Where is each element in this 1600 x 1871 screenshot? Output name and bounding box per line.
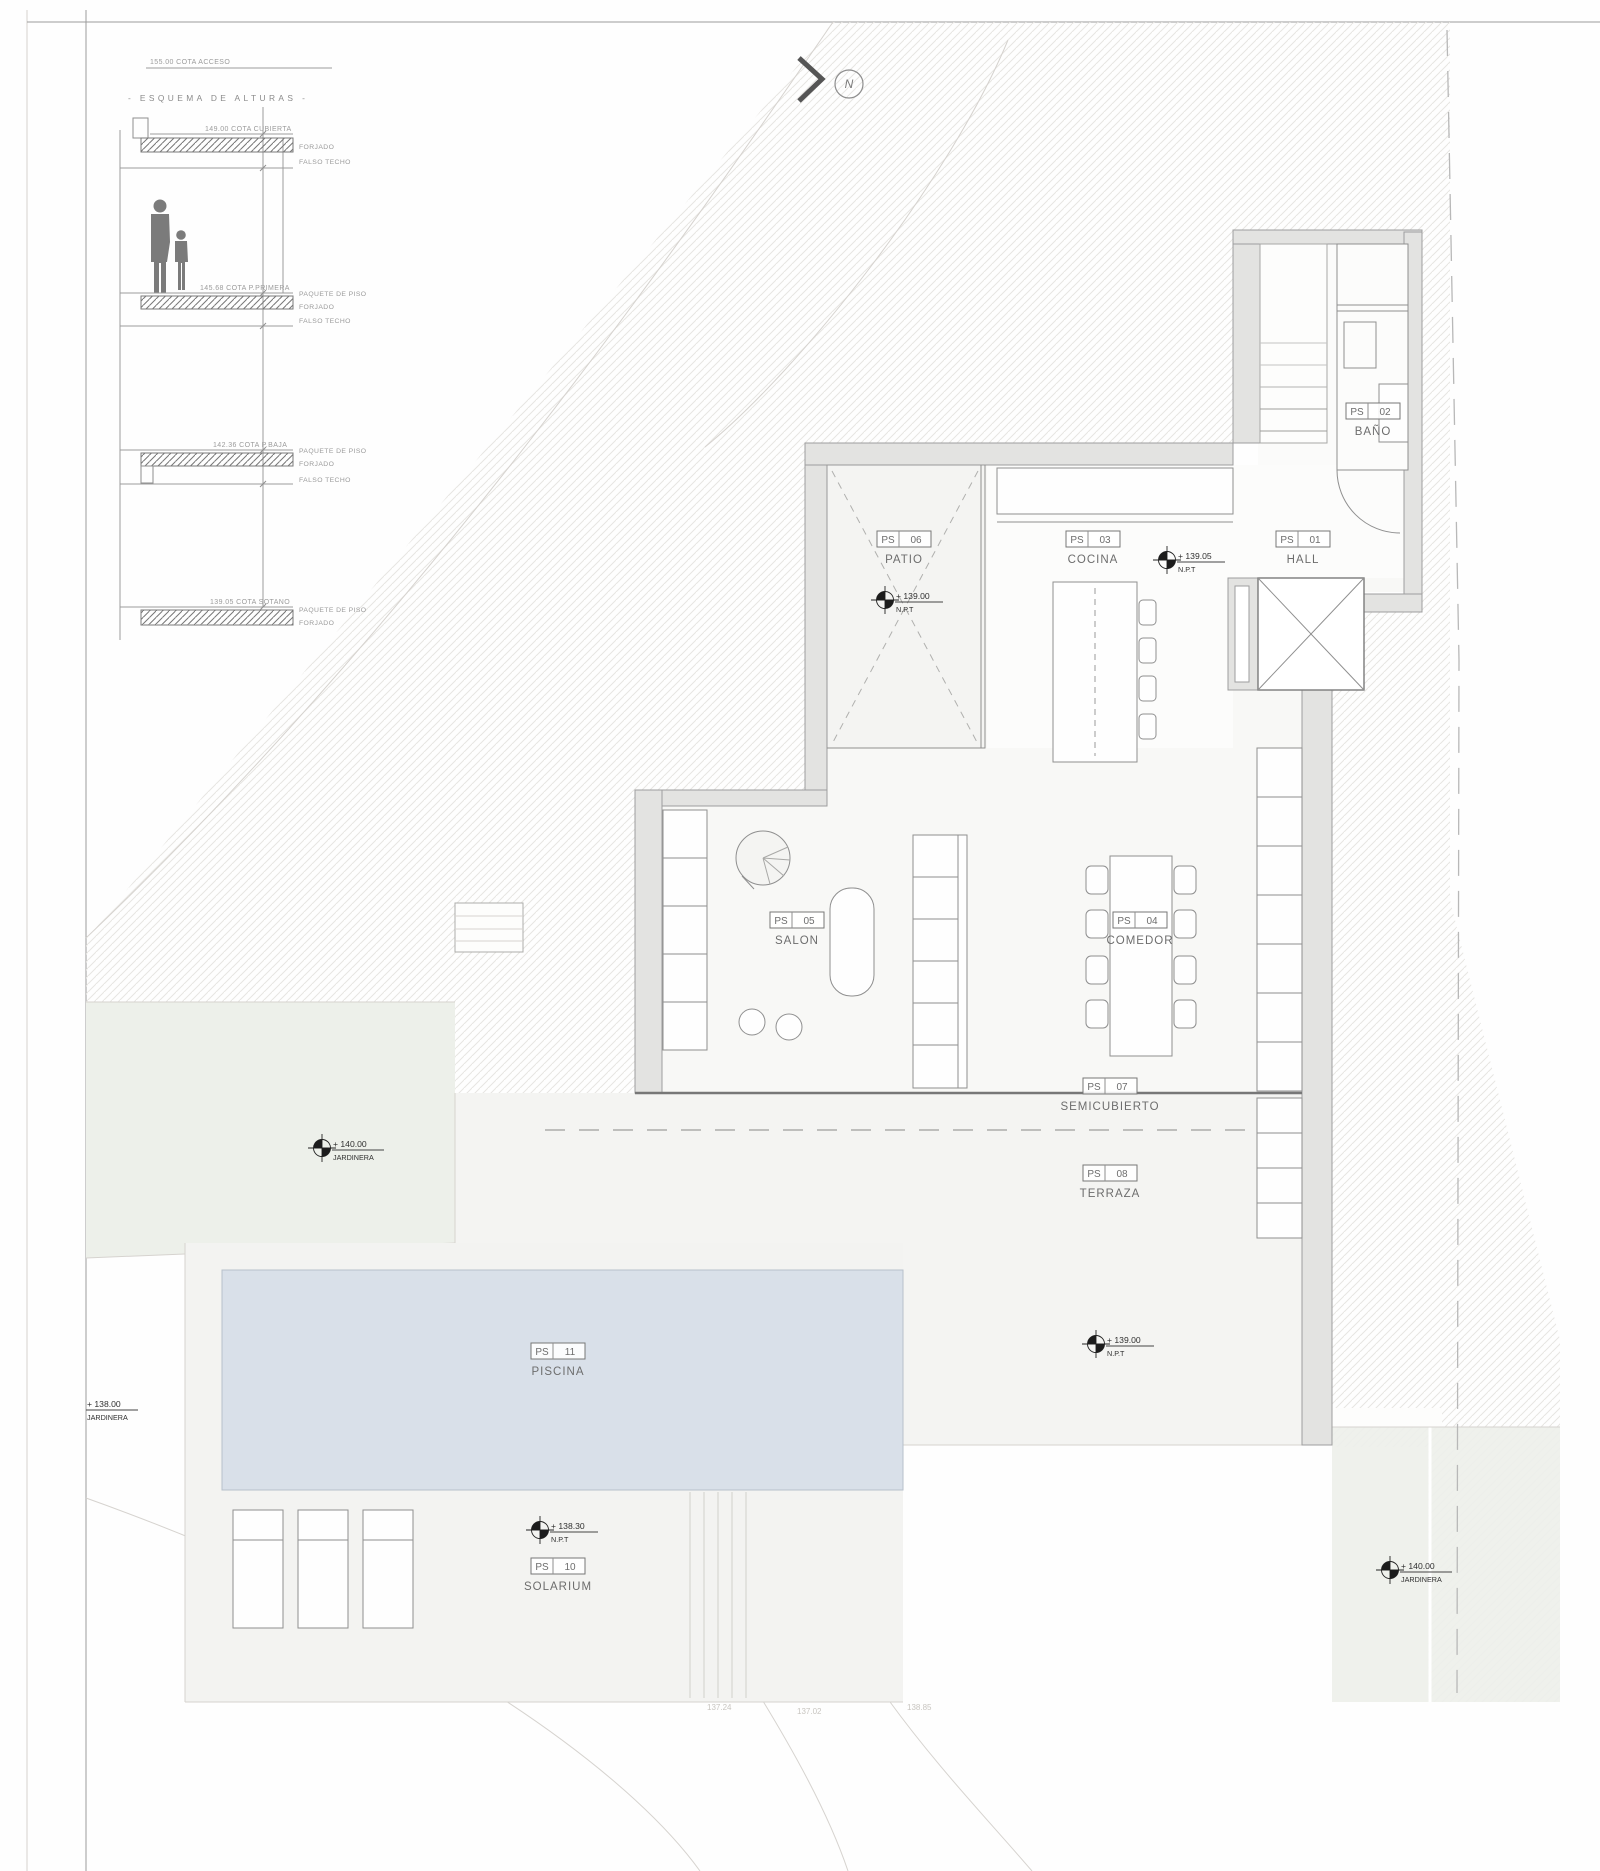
window-modules-terrace (1257, 1098, 1302, 1238)
svg-text:PISCINA: PISCINA (531, 1366, 584, 1378)
sun-loungers (233, 1510, 413, 1628)
side-table (776, 1014, 802, 1040)
north-label: N (845, 77, 854, 91)
garden-planter-left (86, 1002, 455, 1258)
staircase (1260, 244, 1327, 443)
wall-step (635, 790, 827, 806)
svg-text:PATIO: PATIO (885, 554, 923, 566)
svg-text:FORJADO: FORJADO (299, 304, 334, 311)
svg-text:FALSO TECHO: FALSO TECHO (299, 477, 351, 484)
svg-text:10: 10 (564, 1562, 576, 1573)
svg-text:06: 06 (910, 535, 922, 546)
svg-text:137.02: 137.02 (797, 1707, 822, 1716)
svg-text:FORJADO: FORJADO (299, 144, 334, 151)
svg-text:FALSO TECHO: FALSO TECHO (299, 318, 351, 325)
svg-text:FALSO TECHO: FALSO TECHO (299, 159, 351, 166)
svg-text:JARDINERA: JARDINERA (1401, 1575, 1442, 1584)
svg-text:04: 04 (1146, 916, 1158, 927)
svg-text:SEMICUBIERTO: SEMICUBIERTO (1060, 1101, 1159, 1113)
svg-text:03: 03 (1099, 535, 1111, 546)
svg-text:COCINA: COCINA (1068, 554, 1119, 566)
svg-text:PS: PS (1280, 535, 1294, 546)
chaise (830, 888, 874, 996)
wall-wing-west (1233, 232, 1260, 443)
wall-wing-north (1233, 230, 1422, 244)
svg-text:+ 139.00: + 139.00 (896, 591, 930, 601)
svg-text:PS: PS (535, 1562, 549, 1573)
svg-text:TERRAZA: TERRAZA (1080, 1188, 1141, 1200)
svg-text:05: 05 (803, 916, 815, 927)
level-marker-jardinera-edge: + 138.00 JARDINERA (86, 1399, 138, 1422)
window-modules-west (663, 810, 707, 1050)
dining-table (1110, 856, 1172, 1056)
side-table (739, 1009, 765, 1035)
svg-text:+ 140.00: + 140.00 (333, 1139, 367, 1149)
svg-text:07: 07 (1116, 1082, 1128, 1093)
svg-text:N.P.T: N.P.T (1178, 565, 1196, 574)
svg-text:HALL: HALL (1287, 554, 1320, 566)
svg-text:N.P.T: N.P.T (1107, 1349, 1125, 1358)
svg-text:PS: PS (774, 916, 788, 927)
svg-text:+ 138.30: + 138.30 (551, 1521, 585, 1531)
svg-text:08: 08 (1116, 1169, 1128, 1180)
svg-text:FORJADO: FORJADO (299, 461, 334, 468)
cota-primera: 145.68 COTA P.PRIMERA (200, 285, 290, 292)
svg-text:PAQUETE DE PISO: PAQUETE DE PISO (299, 448, 366, 455)
wall-north (805, 443, 1233, 465)
svg-text:N.P.T: N.P.T (896, 605, 914, 614)
wall-salon-west (635, 790, 662, 1093)
svg-text:PS: PS (1117, 916, 1131, 927)
svg-text:PAQUETE DE PISO: PAQUETE DE PISO (299, 607, 366, 614)
garden-stair (455, 903, 523, 952)
svg-text:02: 02 (1379, 407, 1391, 418)
garden-planter-right (1332, 1408, 1560, 1702)
svg-text:BAÑO: BAÑO (1355, 425, 1392, 438)
svg-text:+ 139.00: + 139.00 (1107, 1335, 1141, 1345)
svg-text:PS: PS (881, 535, 895, 546)
sofa (913, 835, 967, 1088)
site-plan-svg: 155.00 COTA ACCESO - ESQUEMA DE ALTURAS … (0, 0, 1600, 1871)
elevator (1228, 578, 1364, 690)
window-modules-east (1257, 748, 1302, 1091)
svg-text:PAQUETE DE PISO: PAQUETE DE PISO (299, 291, 366, 298)
svg-text:PS: PS (1087, 1082, 1101, 1093)
svg-text:COMEDOR: COMEDOR (1106, 935, 1173, 947)
svg-text:11: 11 (565, 1347, 576, 1358)
svg-text:138.85: 138.85 (907, 1703, 932, 1712)
svg-text:PS: PS (535, 1347, 549, 1358)
svg-text:PS: PS (1070, 535, 1084, 546)
svg-text:+ 139.05: + 139.05 (1178, 551, 1212, 561)
svg-text:137.24: 137.24 (707, 1703, 732, 1712)
height-scheme: 155.00 COTA ACCESO - ESQUEMA DE ALTURAS … (120, 59, 366, 640)
dining-set (1086, 856, 1196, 1056)
svg-text:+ 140.00: + 140.00 (1401, 1561, 1435, 1571)
pool (222, 1270, 903, 1490)
svg-text:FORJADO: FORJADO (299, 620, 334, 627)
contour-elevation-labels: 137.24 137.02 138.85 (707, 1703, 932, 1716)
svg-text:SALON: SALON (775, 935, 819, 947)
svg-text:PS: PS (1350, 407, 1364, 418)
svg-text:+ 138.00: + 138.00 (87, 1399, 121, 1409)
cota-cubierta: 149.00 COTA CUBIERTA (205, 126, 292, 133)
cota-baja: 142.36 COTA P.BAJA (213, 442, 287, 449)
wall-east (1302, 612, 1332, 1445)
svg-text:JARDINERA: JARDINERA (333, 1153, 374, 1162)
svg-text:PS: PS (1087, 1169, 1101, 1180)
access-level-note: 155.00 COTA ACCESO (150, 59, 230, 66)
drawing-sheet: 155.00 COTA ACCESO - ESQUEMA DE ALTURAS … (0, 0, 1600, 1871)
svg-text:SOLARIUM: SOLARIUM (524, 1581, 592, 1593)
kitchen-counter (997, 468, 1233, 514)
cota-sotano: 139.05 COTA SOTANO (210, 599, 290, 606)
human-figures (151, 200, 188, 294)
wall-patio-west (805, 465, 827, 790)
scheme-title: - ESQUEMA DE ALTURAS - (128, 93, 308, 103)
svg-text:N.P.T: N.P.T (551, 1535, 569, 1544)
svg-text:JARDINERA: JARDINERA (87, 1413, 128, 1422)
svg-text:01: 01 (1309, 535, 1321, 546)
